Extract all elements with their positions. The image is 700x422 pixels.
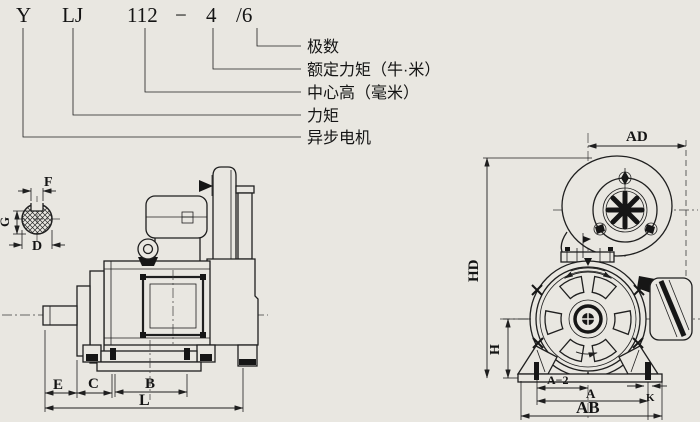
blower-column xyxy=(213,167,236,262)
front-bolt-right xyxy=(645,362,651,380)
front-base-plate xyxy=(518,374,662,382)
label-torque: 力矩 xyxy=(307,107,339,125)
callout-poles xyxy=(257,28,301,46)
dim-d: D xyxy=(32,239,42,254)
label-rated-torque: 额定力矩（牛·米） xyxy=(307,61,440,79)
code-poles-alt: /6 xyxy=(236,3,252,27)
keyway-cutout xyxy=(31,202,43,211)
dim-l: L xyxy=(139,392,150,409)
front-bolt-left xyxy=(534,362,539,380)
dim-k: K xyxy=(646,392,655,404)
dim-e: E xyxy=(53,377,63,393)
foot-bolt-rear xyxy=(184,348,190,360)
code-series: Y xyxy=(16,3,31,27)
shaft-section-detail: F G D xyxy=(0,175,65,254)
shaft xyxy=(43,306,77,325)
drawing-svg: Y LJ 112 − 4 /6 极数 额定力矩（牛·米） 中心高（毫米） 力矩 … xyxy=(0,0,700,422)
blower-rear-column xyxy=(238,193,252,259)
code-frame: 112 xyxy=(127,3,158,27)
blower-body xyxy=(207,259,258,345)
dim-g: G xyxy=(0,217,12,227)
code-poles-main: 4 xyxy=(206,3,217,27)
dim-ab: AB xyxy=(576,398,600,417)
dim-b: B xyxy=(145,376,155,392)
motor-front-view xyxy=(500,133,700,420)
dim-hd: HD xyxy=(466,259,482,282)
motor-spec-drawing: Y LJ 112 − 4 /6 极数 额定力矩（牛·米） 中心高（毫米） 力矩 … xyxy=(0,0,700,422)
code-dash: − xyxy=(175,3,187,27)
callout-async-motor xyxy=(23,28,301,137)
code-labels: 极数 额定力矩（牛·米） 中心高（毫米） 力矩 异步电机 xyxy=(307,38,440,147)
code-callout-lines xyxy=(23,28,301,137)
motor-side-view xyxy=(2,167,268,400)
eyebolt-ring xyxy=(138,239,158,259)
model-code: Y LJ 112 − 4 /6 xyxy=(16,3,252,27)
callout-torque xyxy=(73,28,301,115)
callout-center-height xyxy=(145,28,301,92)
base-plate-lower xyxy=(97,362,201,371)
label-center-height: 中心高（毫米） xyxy=(307,83,419,102)
label-async-motor: 异步电机 xyxy=(307,129,371,147)
flag-marker xyxy=(199,180,213,192)
dim-f: F xyxy=(44,175,53,190)
blower-foot-pad xyxy=(239,359,256,365)
blower-cap xyxy=(236,186,254,193)
dim-c: C xyxy=(88,376,99,392)
dim-a2: A−2 xyxy=(547,373,569,387)
foot-bolt-front xyxy=(110,348,116,360)
label-poles: 极数 xyxy=(307,38,339,56)
dim-ad: AD xyxy=(626,129,648,145)
code-type: LJ xyxy=(62,3,83,27)
dim-h: H xyxy=(488,344,503,355)
